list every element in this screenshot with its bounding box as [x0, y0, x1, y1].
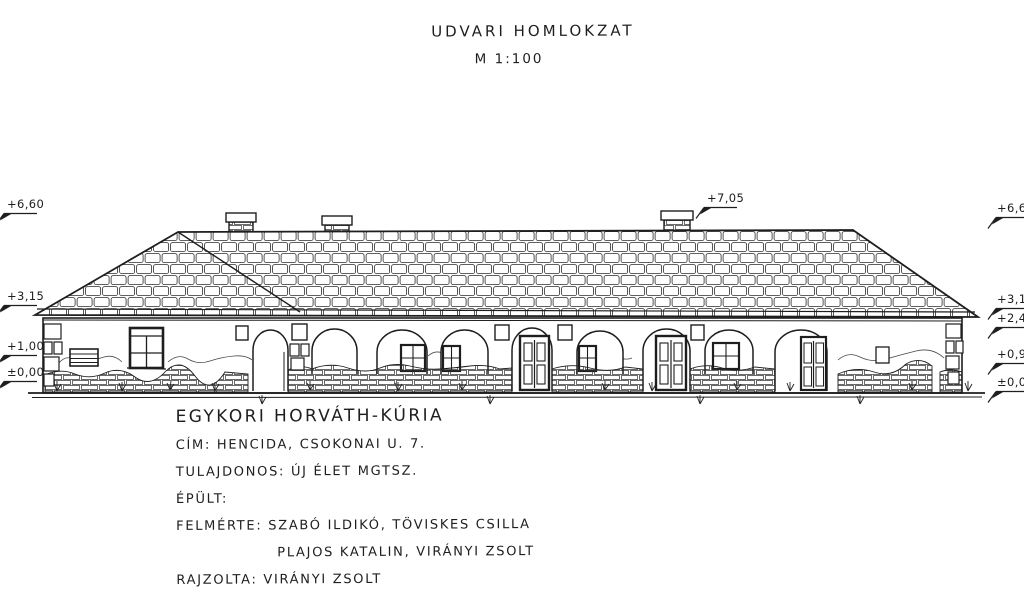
address-row: CÍM: HENCIDA, CSOKONAI U. 7.	[176, 436, 535, 454]
level-mark-left-100: +1,00	[0, 340, 46, 368]
surveyed-row-1: FELMÉRTE: SZABÓ ILDIKÓ, TÖVISKES CSILLA	[176, 517, 535, 535]
level-tick-icon	[0, 379, 38, 394]
level-mark-right-095: +0,95	[986, 348, 1024, 376]
level-tick-icon	[986, 361, 1024, 376]
wall-niche	[876, 347, 889, 363]
level-value: ±0,00	[0, 366, 46, 378]
level-value: +6,60	[0, 198, 46, 210]
drawing-sheet: UDVARI HOMLOKZAT M 1:100	[0, 0, 1024, 616]
porch-arch	[253, 330, 288, 391]
level-mark-left-660: +6,60	[0, 198, 46, 226]
building-name: EGYKORI HORVÁTH-KÚRIA	[175, 405, 534, 427]
level-mark-left-000: ±0,00	[0, 366, 46, 394]
level-tick-icon	[0, 303, 38, 318]
door-7	[656, 336, 686, 390]
roof	[35, 230, 978, 317]
info-block: EGYKORI HORVÁTH-KÚRIA CÍM: HENCIDA, CSOK…	[175, 405, 535, 600]
level-value: ±0,00	[986, 376, 1024, 388]
level-tick-icon	[986, 325, 1024, 340]
level-value: +6,60	[986, 202, 1024, 214]
built-row: ÉPÜLT:	[176, 490, 535, 508]
level-tick-icon	[694, 205, 738, 220]
level-value: +2,40	[986, 312, 1024, 324]
vent-grille	[70, 349, 98, 366]
owner-row: TULAJDONOS: ÚJ ÉLET MGTSZ.	[176, 463, 535, 481]
gable-window	[127, 328, 166, 369]
level-mark-right-000: ±0,00	[986, 376, 1024, 404]
surveyed-row-2: PLAJOS KATALIN, VIRÁNYI ZSOLT	[176, 544, 535, 562]
level-tick-icon	[986, 215, 1024, 230]
level-value: +0,95	[986, 348, 1024, 360]
door-9	[801, 337, 826, 390]
level-value: +3,15	[986, 293, 1024, 305]
level-mark-left-315: +3,15	[0, 290, 46, 318]
level-mark-right-240: +2,40	[986, 312, 1024, 340]
level-value: +3,15	[0, 290, 46, 302]
drawn-by-row: RAJZOLTA: VIRÁNYI ZSOLT	[176, 571, 535, 589]
level-value: +7,05	[694, 192, 746, 204]
level-tick-icon	[986, 389, 1024, 404]
arch-window-8	[713, 343, 739, 369]
door-center	[520, 336, 549, 390]
level-mark-right-660: +6,60	[986, 202, 1024, 230]
level-tick-icon	[0, 211, 38, 226]
level-mark-roof-peak: +7,05	[694, 192, 746, 220]
level-value: +1,00	[0, 340, 46, 352]
